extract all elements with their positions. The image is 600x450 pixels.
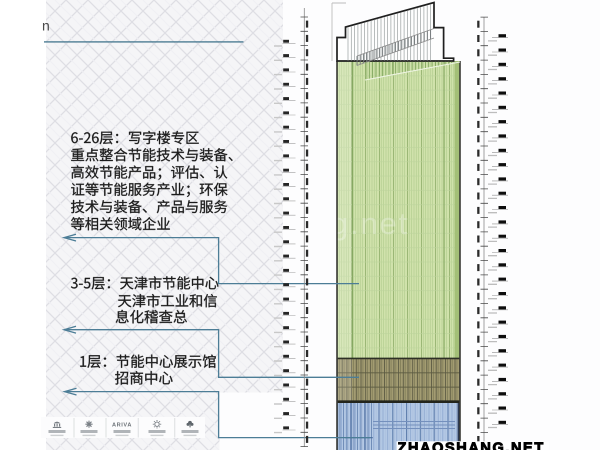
svg-text:n: n [42,18,50,34]
svg-text:ZHAOSHANG.NET: ZHAOSHANG.NET [398,440,545,450]
svg-text:g.net: g.net [331,206,409,241]
svg-text:ARIVA: ARIVA [112,422,132,428]
